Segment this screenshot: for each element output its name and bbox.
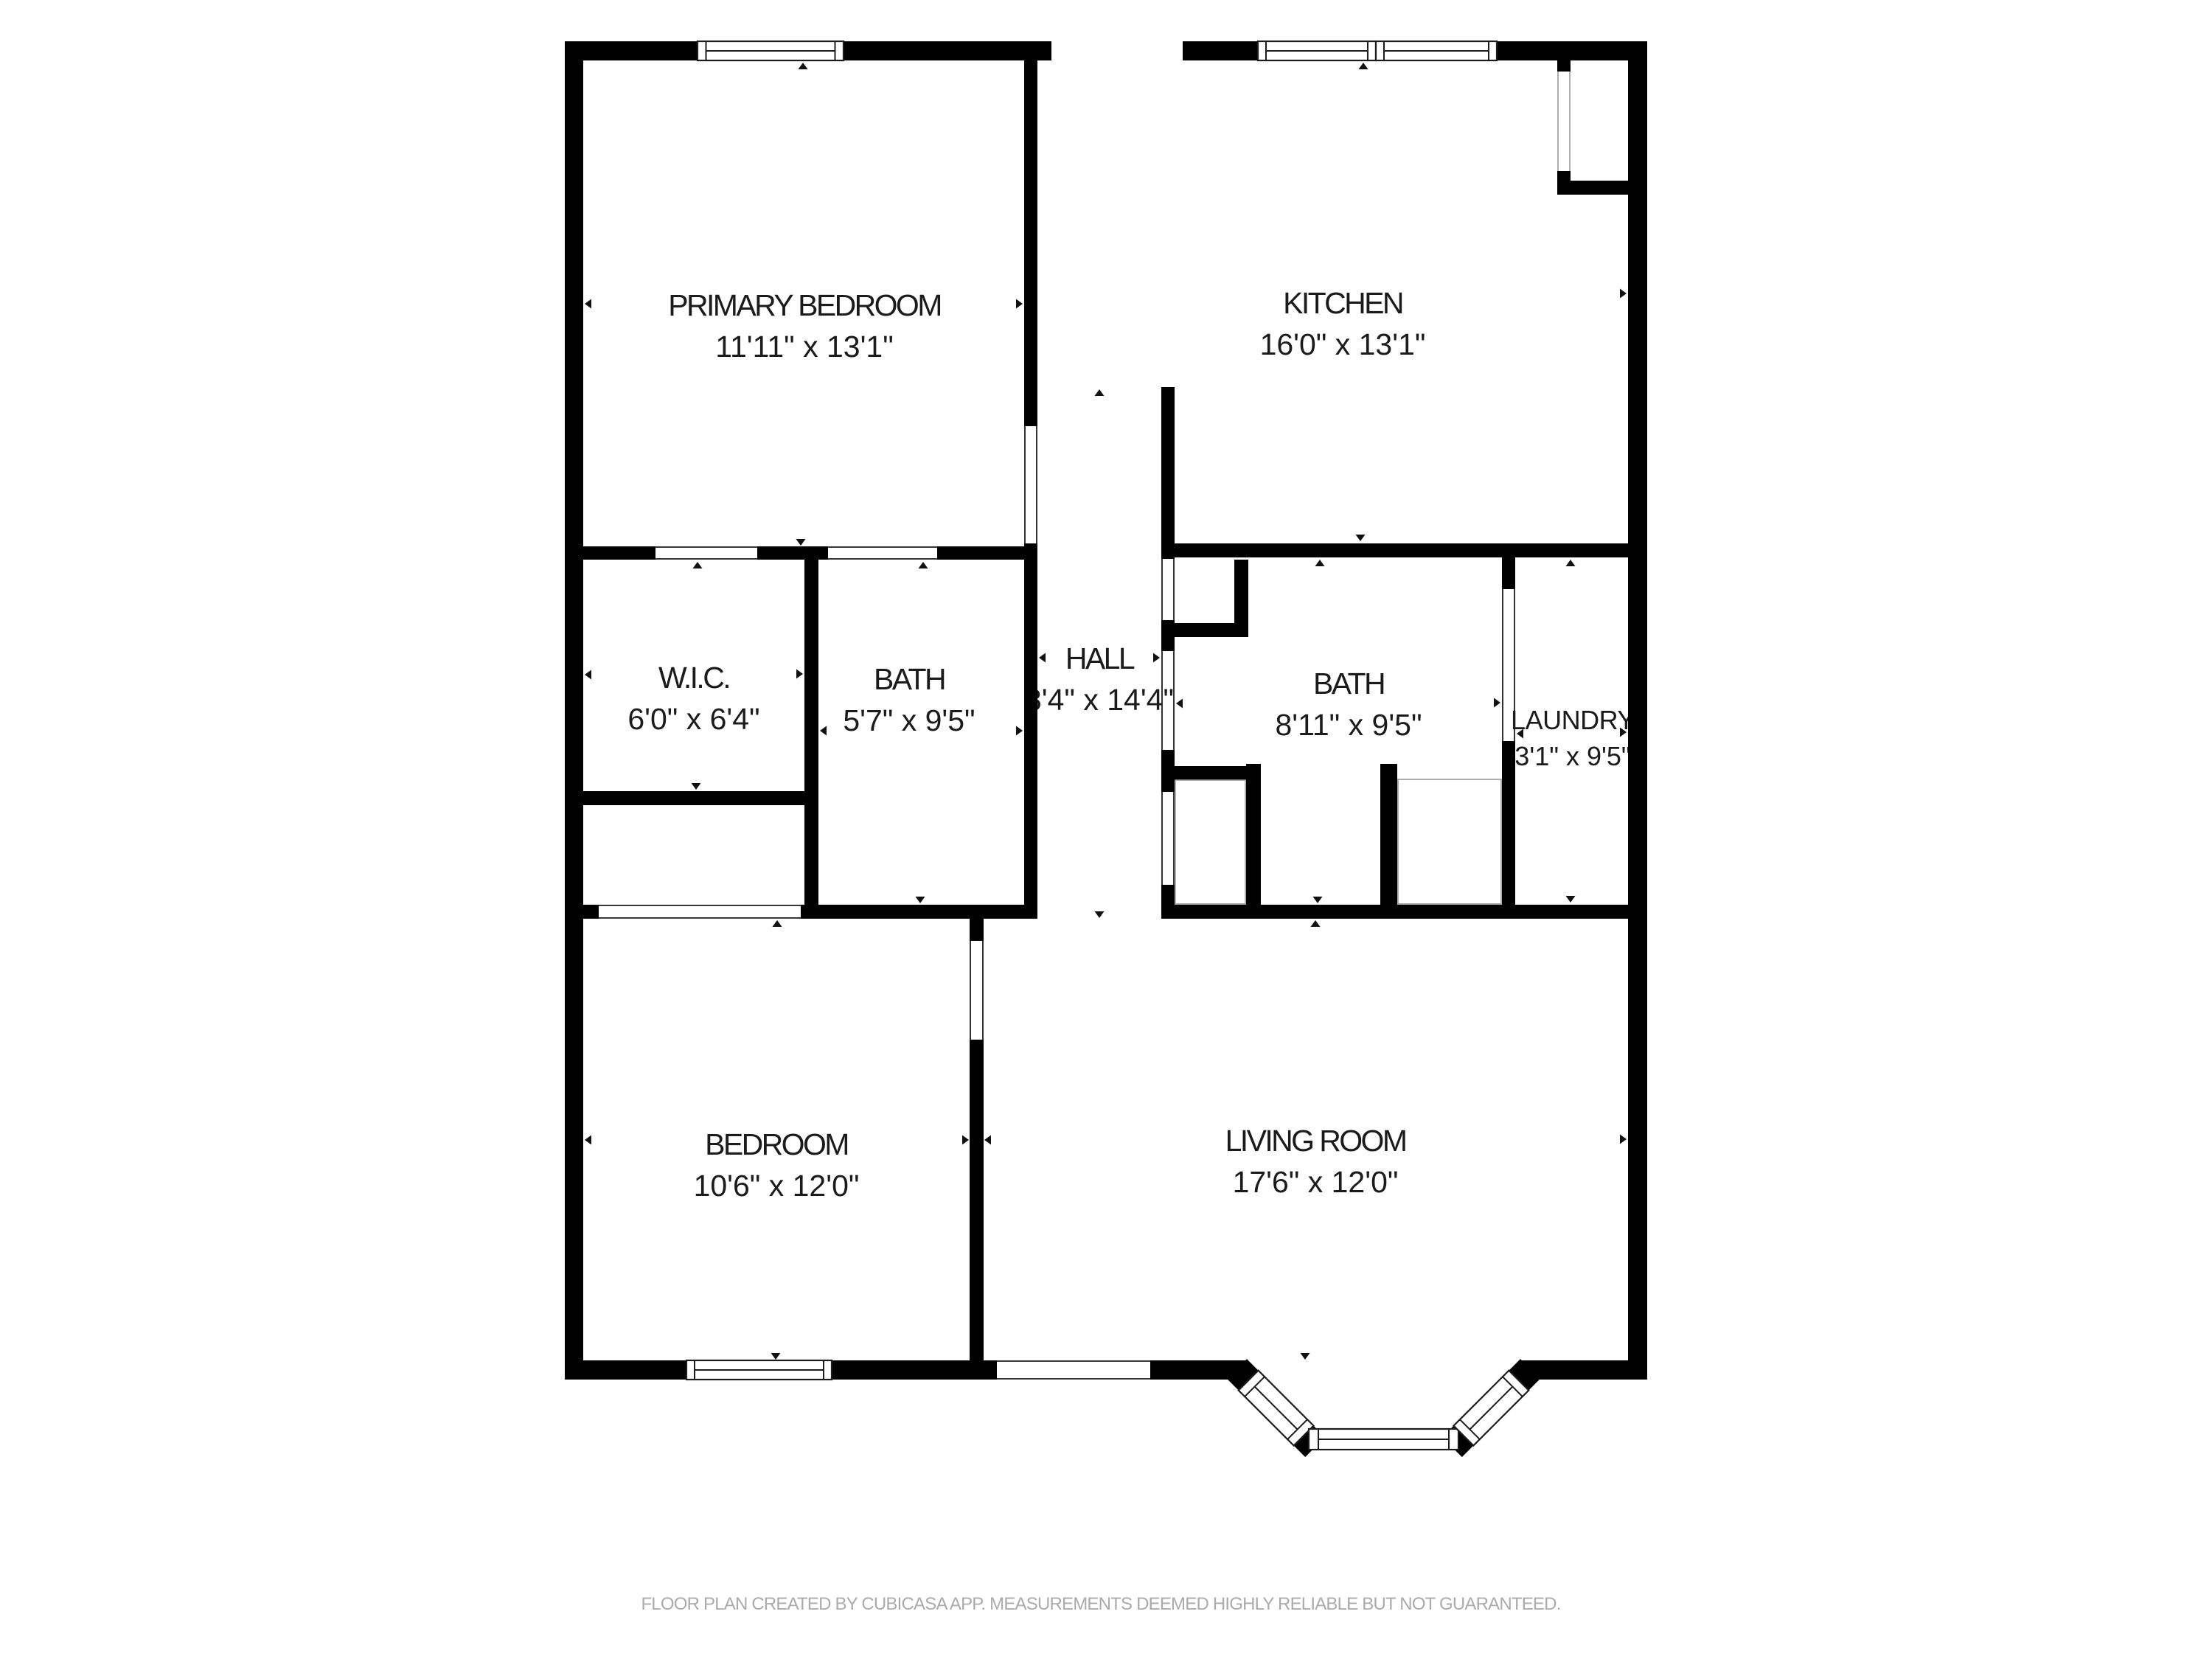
svg-text:8'11" x 9'5": 8'11" x 9'5" [1275,708,1422,742]
svg-text:10'6" x 12'0": 10'6" x 12'0" [694,1169,860,1203]
svg-text:LIVING ROOM: LIVING ROOM [1225,1124,1406,1158]
svg-text:16'0" x 13'1": 16'0" x 13'1" [1260,327,1426,361]
svg-text:HALL: HALL [1065,641,1135,675]
svg-text:BATH: BATH [874,662,945,696]
svg-text:FLOOR PLAN CREATED BY CUBICASA: FLOOR PLAN CREATED BY CUBICASA APP. MEAS… [641,1594,1560,1614]
svg-text:5'7" x 9'5": 5'7" x 9'5" [843,703,975,737]
svg-text:11'11" x 13'1": 11'11" x 13'1" [715,330,894,364]
svg-text:6'0" x 6'4": 6'0" x 6'4" [627,702,759,736]
svg-text:LAUNDRY: LAUNDRY [1511,705,1635,735]
svg-text:8'4" x 14'4": 8'4" x 14'4" [1025,683,1174,717]
svg-text:KITCHEN: KITCHEN [1283,286,1402,320]
svg-text:17'6" x 12'0": 17'6" x 12'0" [1233,1165,1399,1199]
svg-text:BATH: BATH [1313,667,1384,700]
svg-text:3'1" x 9'5": 3'1" x 9'5" [1514,741,1630,771]
svg-text:BEDROOM: BEDROOM [705,1127,848,1161]
svg-text:PRIMARY BEDROOM: PRIMARY BEDROOM [668,288,941,322]
svg-text:W.I.C.: W.I.C. [658,661,729,695]
